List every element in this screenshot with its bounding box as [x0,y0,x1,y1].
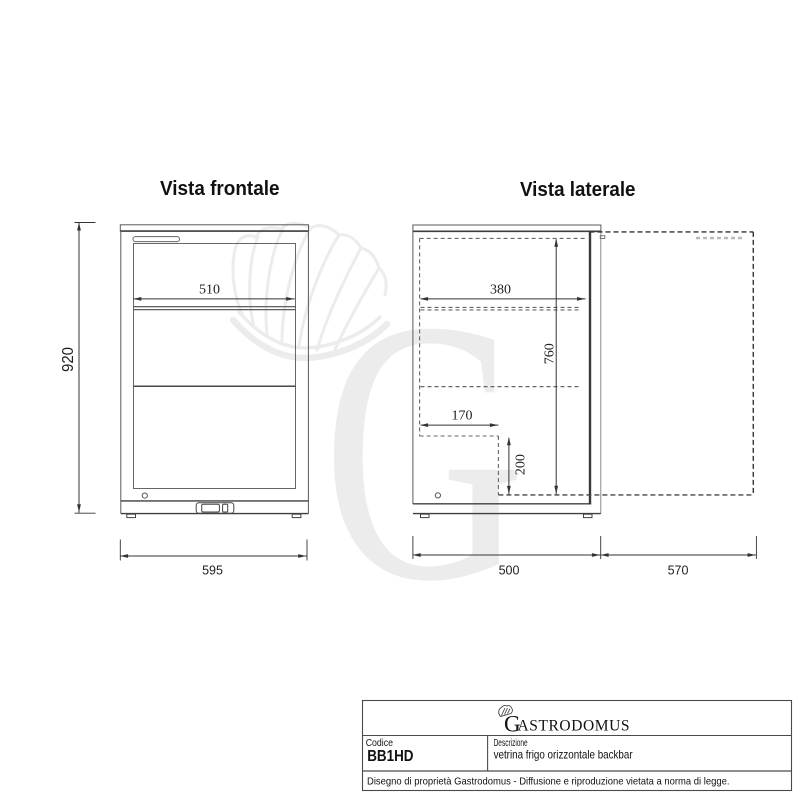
svg-text:920: 920 [60,347,77,372]
svg-text:vetrina frigo orizzontale back: vetrina frigo orizzontale backbar [494,748,633,762]
svg-text:170: 170 [452,409,473,424]
svg-text:380: 380 [490,283,511,298]
svg-text:570: 570 [668,564,689,578]
svg-text:500: 500 [499,564,520,578]
svg-text:595: 595 [202,564,223,578]
svg-text:BB1HD: BB1HD [367,748,413,765]
svg-text:ASTRODOMUS: ASTRODOMUS [518,718,630,735]
svg-text:510: 510 [199,283,220,298]
svg-text:200: 200 [514,454,529,475]
svg-text:760: 760 [543,343,558,364]
svg-text:Disegno di proprietà Gastrodom: Disegno di proprietà Gastrodomus - Diffu… [367,776,730,788]
svg-text:Vista frontale: Vista frontale [160,178,280,200]
svg-text:G: G [322,243,525,658]
svg-text:Vista laterale: Vista laterale [520,179,636,201]
